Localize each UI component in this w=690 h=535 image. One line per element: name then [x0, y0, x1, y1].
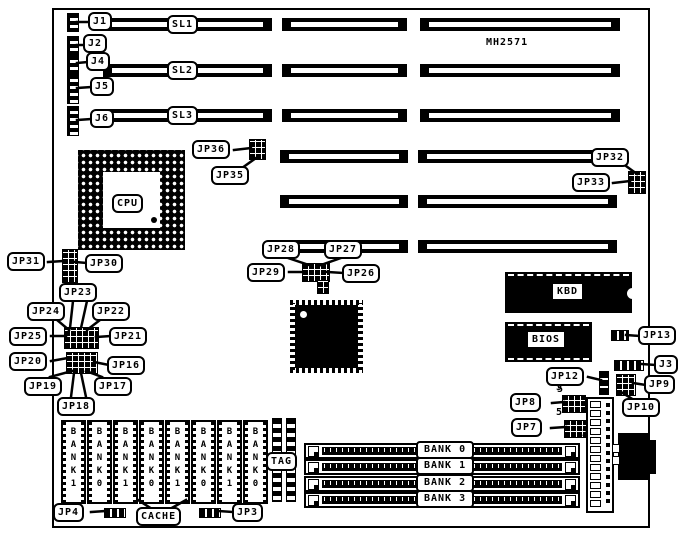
callout-j2: J2 — [83, 34, 107, 53]
callout-jp12: JP12 — [546, 367, 584, 386]
callout-jp32: JP32 — [591, 148, 629, 167]
callout-sl1: SL1 — [167, 15, 198, 34]
callout-j4: J4 — [86, 52, 110, 71]
callout-jp31: JP31 — [7, 252, 45, 271]
callout-jp17: JP17 — [94, 377, 132, 396]
simm-bank1-label: BANK 1 — [416, 457, 474, 475]
callout-j5: J5 — [90, 77, 114, 96]
chip-label-bios: BIOS — [526, 330, 566, 349]
callout-jp16: JP16 — [107, 356, 145, 375]
callout-jp9: JP9 — [644, 375, 675, 394]
callout-jp18: JP18 — [57, 397, 95, 416]
simm-bank3-label: BANK 3 — [416, 490, 474, 508]
callout-jp30: JP30 — [85, 254, 123, 273]
callout-jp4: JP4 — [53, 503, 84, 522]
callout-jp19: JP19 — [24, 377, 62, 396]
callout-jp7: JP7 — [511, 418, 542, 437]
jp8-pin2-number: 2 — [582, 403, 588, 414]
callout-jp10: JP10 — [622, 398, 660, 417]
jp7-pin2-number: 2 — [582, 428, 588, 439]
callout-jp23: JP23 — [59, 283, 97, 302]
callout-sl2: SL2 — [167, 61, 198, 80]
callout-j3: J3 — [654, 355, 678, 374]
callout-jp28: JP28 — [262, 240, 300, 259]
callout-jp29: JP29 — [247, 263, 285, 282]
callout-jp13: JP13 — [638, 326, 676, 345]
callout-jp22: JP22 — [92, 302, 130, 321]
callout-cache: CACHE — [136, 507, 181, 526]
callout-jp21: JP21 — [109, 327, 147, 346]
callout-jp25: JP25 — [9, 327, 47, 346]
callout-jp35: JP35 — [211, 166, 249, 185]
callout-tag: TAG — [266, 452, 297, 471]
callout-jp8: JP8 — [510, 393, 541, 412]
callout-sl3: SL3 — [167, 106, 198, 125]
callout-j6: J6 — [90, 109, 114, 128]
callout-jp3: JP3 — [232, 503, 263, 522]
callout-jp36: JP36 — [192, 140, 230, 159]
motherboard-diagram: MH2571 SL1 SL2 SL3 J1 J2 J4 J5 J6 JP36 J… — [0, 0, 690, 535]
callout-j1: J1 — [88, 12, 112, 31]
callout-jp26: JP26 — [342, 264, 380, 283]
board-model-title: MH2571 — [486, 37, 528, 48]
callout-jp24: JP24 — [27, 302, 65, 321]
callout-jp33: JP33 — [572, 173, 610, 192]
callout-jp20: JP20 — [9, 352, 47, 371]
chip-label-cpu: CPU — [112, 194, 143, 213]
jp7-pin5-number: 5 — [556, 407, 562, 418]
callout-jp27: JP27 — [324, 240, 362, 259]
chip-label-kbd: KBD — [551, 282, 584, 301]
